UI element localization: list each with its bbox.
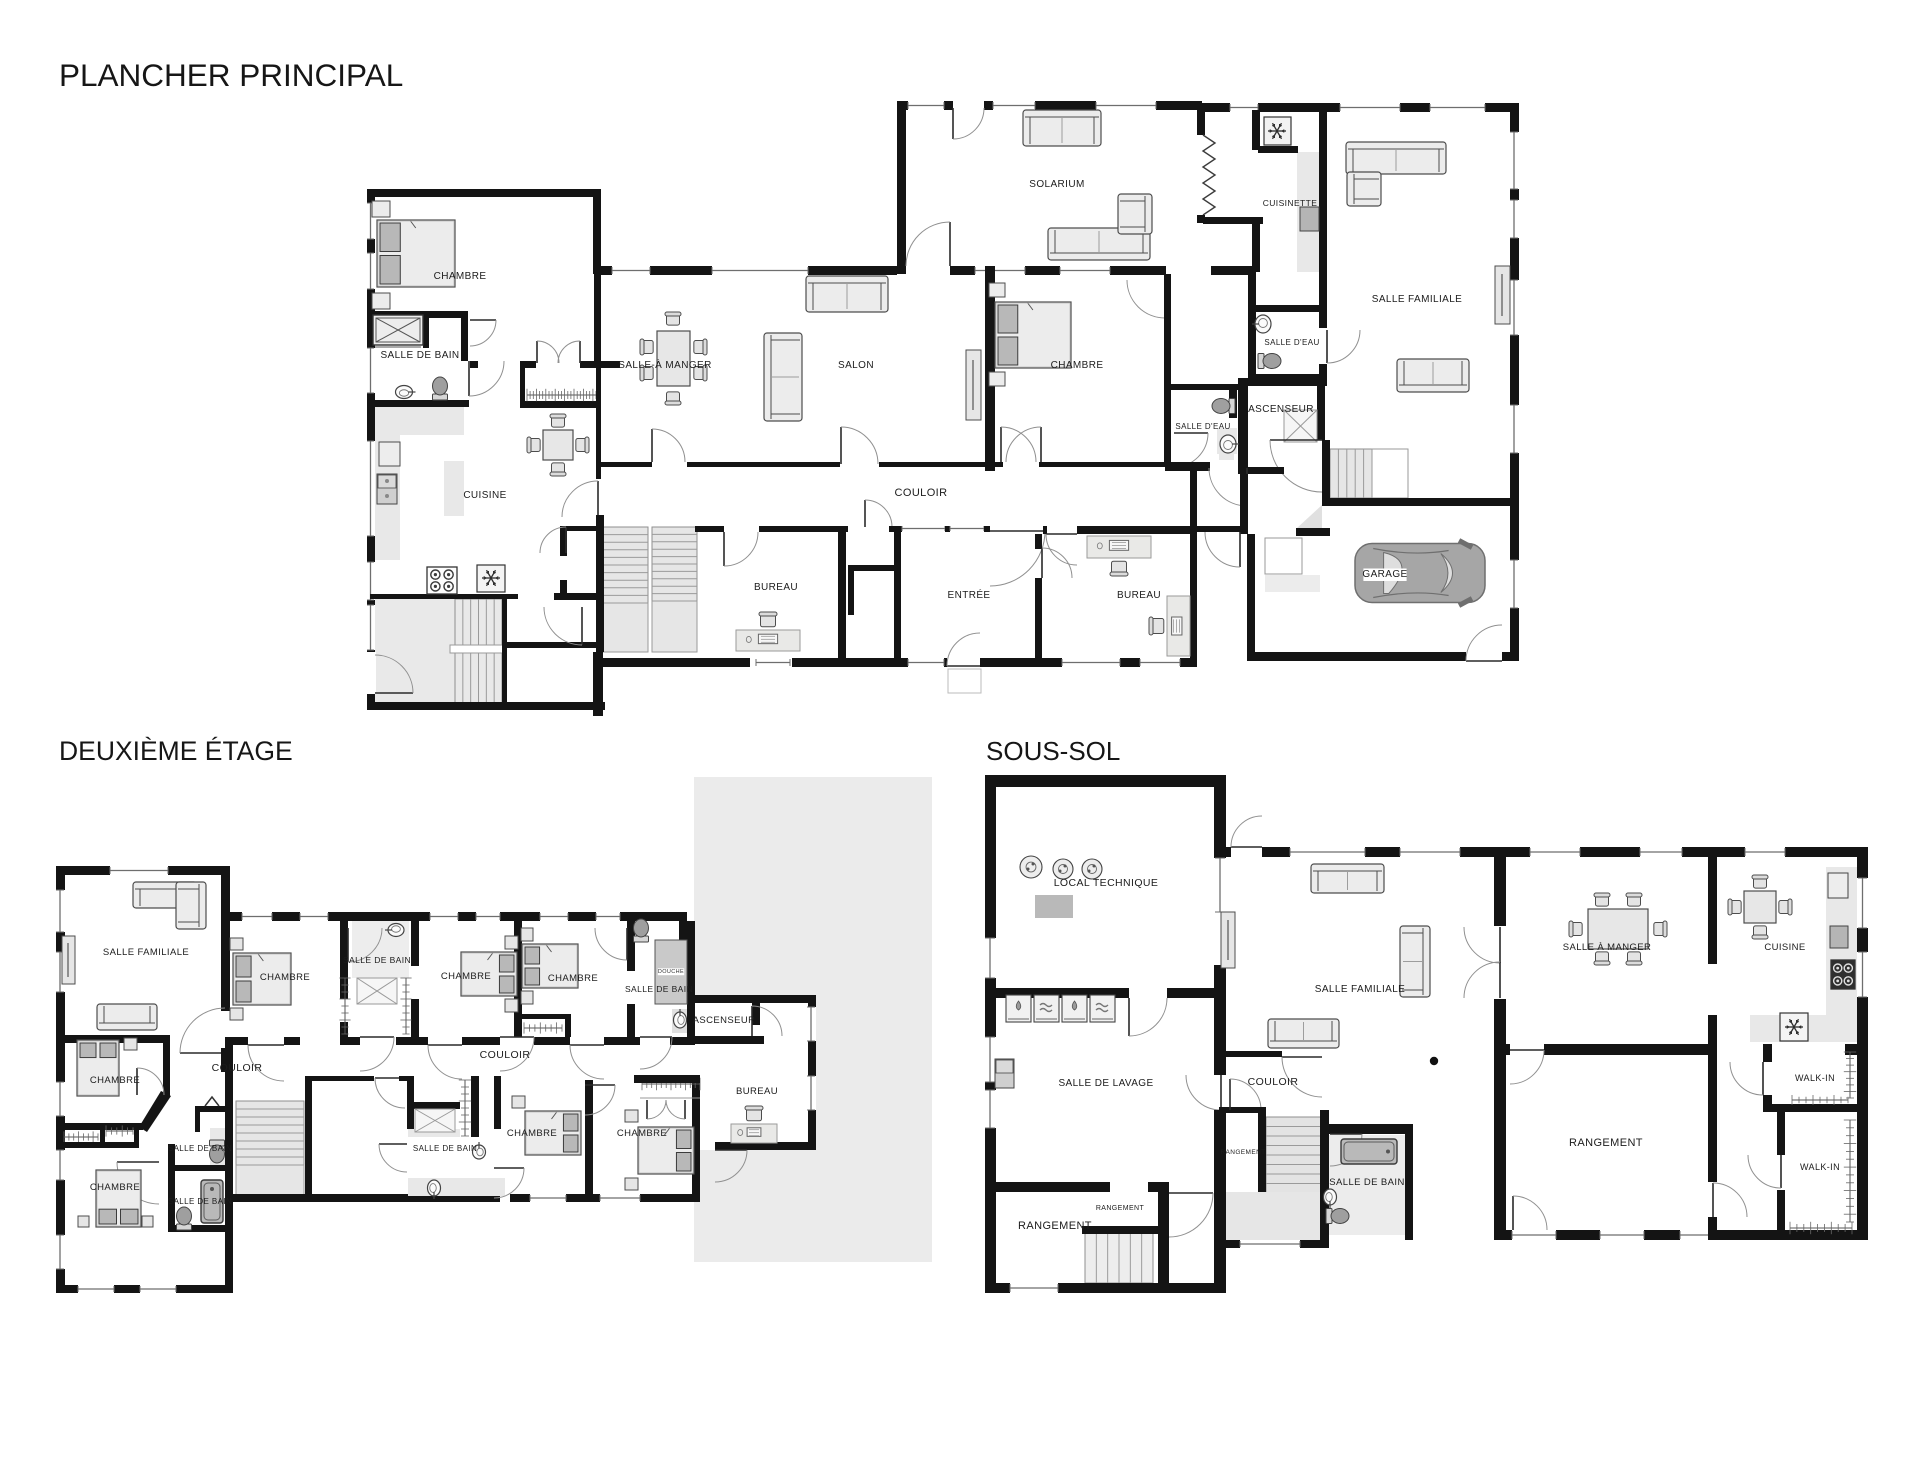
svg-text:CHAMBRE: CHAMBRE [1051,360,1104,371]
svg-text:DOUCHE: DOUCHE [658,969,684,975]
svg-text:SALON: SALON [838,360,874,371]
svg-text:SALLE D'EAU: SALLE D'EAU [1264,338,1319,347]
svg-text:SALLE FAMILIALE: SALLE FAMILIALE [103,947,189,958]
svg-text:SALLE À MANGER: SALLE À MANGER [1563,942,1652,953]
svg-text:BUREAU: BUREAU [736,1086,778,1097]
svg-text:LOCAL TECHNIQUE: LOCAL TECHNIQUE [1054,877,1159,889]
svg-text:CHAMBRE: CHAMBRE [441,971,491,982]
svg-text:ASCENSEUR: ASCENSEUR [693,1015,756,1026]
svg-text:CHAMBRE: CHAMBRE [548,973,598,984]
svg-text:SOLARIUM: SOLARIUM [1029,179,1084,190]
svg-text:COULOIR: COULOIR [1248,1076,1299,1088]
svg-text:SALLE DE LAVAGE: SALLE DE LAVAGE [1058,1078,1153,1089]
svg-text:CHAMBRE: CHAMBRE [90,1182,140,1193]
svg-text:CUISINE: CUISINE [1764,942,1805,953]
svg-text:WALK-IN: WALK-IN [1795,1073,1835,1083]
svg-text:SOUS-SOL: SOUS-SOL [986,736,1120,766]
svg-text:COULOIR: COULOIR [895,487,948,499]
svg-text:COULOIR: COULOIR [212,1062,263,1074]
svg-text:CHAMBRE: CHAMBRE [90,1075,140,1086]
svg-text:SALLE DE BAIN: SALLE DE BAIN [168,1197,232,1206]
svg-text:BUREAU: BUREAU [1117,590,1161,601]
svg-text:SALLE DE BAIN: SALLE DE BAIN [380,350,459,361]
svg-text:SALLE DE BAIN: SALLE DE BAIN [343,955,411,965]
svg-text:BUREAU: BUREAU [754,582,798,593]
svg-text:CHAMBRE: CHAMBRE [260,972,310,983]
svg-text:GARAGE: GARAGE [1362,569,1407,580]
svg-text:SALLE DE BAIN: SALLE DE BAIN [625,984,693,994]
svg-text:PLANCHER PRINCIPAL: PLANCHER PRINCIPAL [59,57,403,93]
svg-text:ASCENSEUR: ASCENSEUR [1248,404,1314,415]
svg-text:RANGEMENT: RANGEMENT [1220,1149,1265,1156]
svg-text:SALLE DE BAIN: SALLE DE BAIN [168,1144,232,1153]
svg-text:CUISINETTE: CUISINETTE [1263,198,1318,208]
svg-text:CHAMBRE: CHAMBRE [507,1128,557,1139]
svg-text:RANGEMENT: RANGEMENT [1018,1220,1092,1232]
svg-text:SALLE FAMILIALE: SALLE FAMILIALE [1315,984,1406,995]
svg-text:CHAMBRE: CHAMBRE [617,1128,667,1139]
svg-text:CHAMBRE: CHAMBRE [434,271,487,282]
svg-text:SALLE D'EAU: SALLE D'EAU [1175,422,1230,431]
svg-text:SALLE-À MANGER: SALLE-À MANGER [618,358,711,371]
svg-text:SALLE DE BAIN: SALLE DE BAIN [1329,1177,1404,1188]
svg-text:SALLE FAMILIALE: SALLE FAMILIALE [1372,294,1463,305]
svg-text:ENTRÉE: ENTRÉE [948,588,991,601]
svg-text:SALLE DE BAIN: SALLE DE BAIN [413,1144,477,1153]
svg-text:CUISINE: CUISINE [463,490,506,501]
svg-text:RANGEMENT: RANGEMENT [1096,1205,1145,1212]
svg-text:DEUXIÈME ÉTAGE: DEUXIÈME ÉTAGE [59,736,293,766]
svg-text:WALK-IN: WALK-IN [1800,1162,1840,1172]
svg-text:RANGEMENT: RANGEMENT [1569,1137,1643,1149]
svg-text:COULOIR: COULOIR [480,1049,531,1061]
